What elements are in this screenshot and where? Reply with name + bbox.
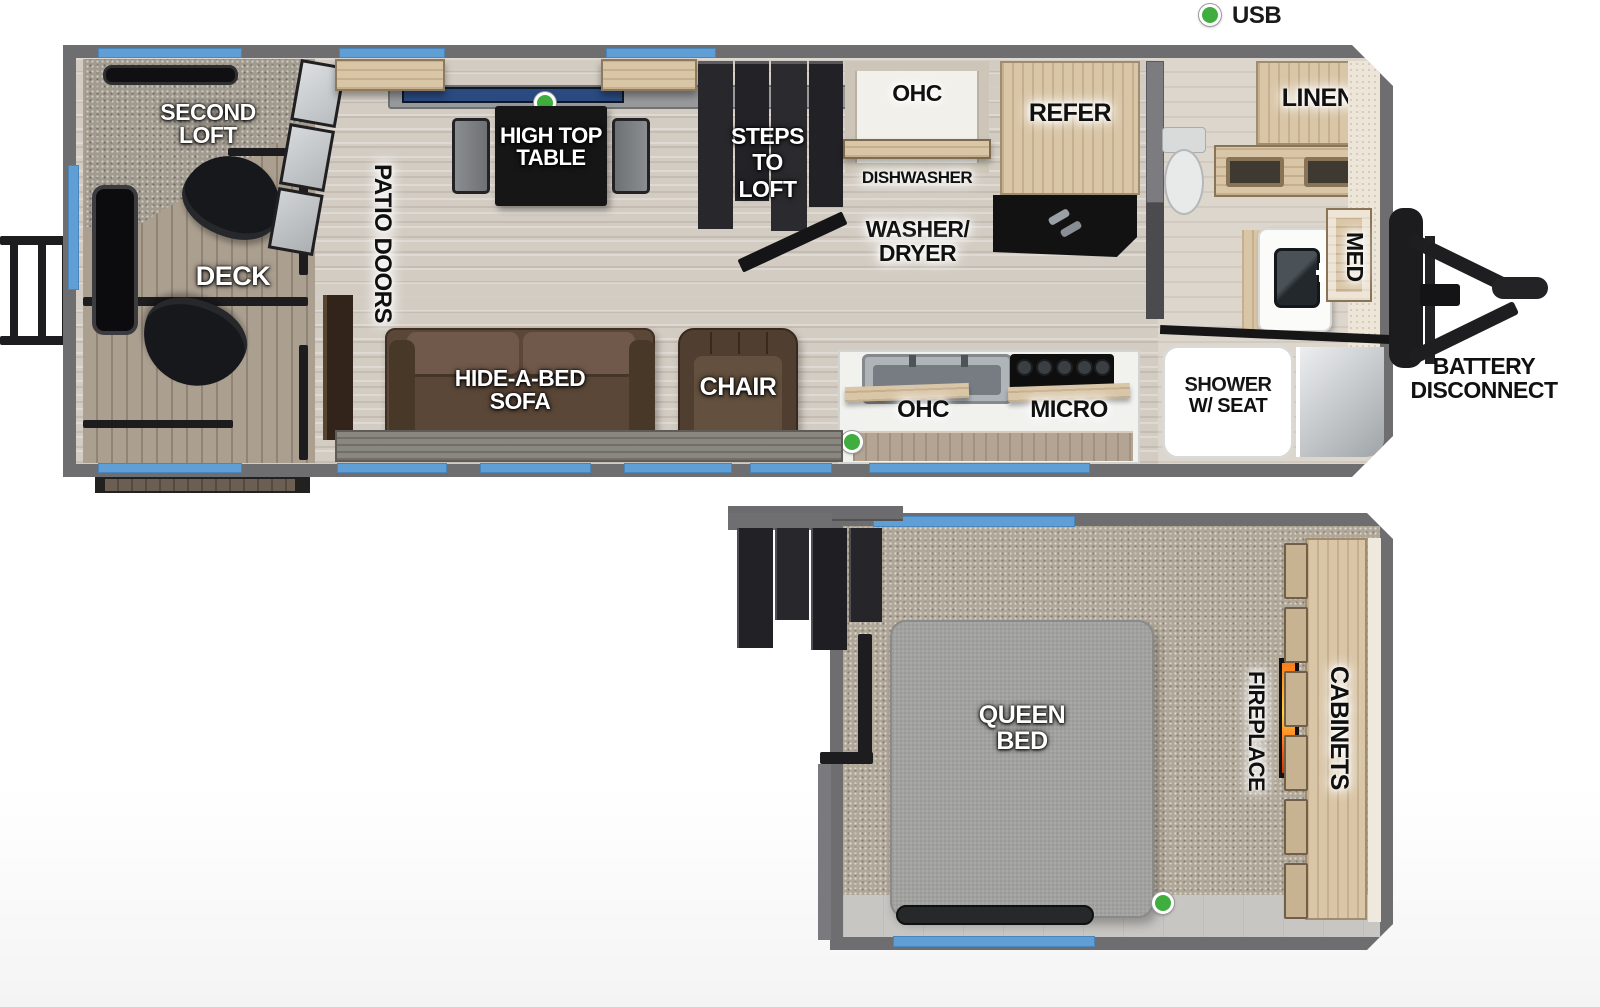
usb-legend-icon — [1199, 4, 1221, 26]
overhead-cabinet — [601, 59, 697, 91]
shower-seat — [1296, 347, 1384, 457]
micro-label: MICRO — [1008, 397, 1130, 422]
high-top-table-label: HIGH TOP TABLE — [493, 125, 609, 170]
cabinet-drawers — [1284, 543, 1308, 920]
counter-dishwasher — [843, 139, 991, 159]
loft-stair-railing — [820, 752, 873, 764]
patio-doors-label: PATIO DOORS — [359, 143, 395, 343]
table-chair — [612, 118, 650, 194]
deck-railing — [83, 420, 233, 428]
floorplan-canvas: USB SECOND LOFT DECK PATIO DOORS — [0, 0, 1600, 1007]
roof-vent — [103, 65, 238, 85]
ohc-top-label: OHC — [845, 81, 989, 105]
rear-ladder-rung — [10, 236, 18, 344]
window-accent — [869, 463, 1090, 473]
med-label: MED — [1331, 217, 1367, 297]
cabinets-label: CABINETS — [1316, 643, 1352, 813]
main-floor-plan: SECOND LOFT DECK PATIO DOORS HIGH TOP TA… — [63, 45, 1393, 477]
bed-footboard — [896, 905, 1094, 925]
ohc-bottom-label: OHC — [863, 397, 983, 422]
overhead-cabinet — [335, 59, 445, 91]
chair-label: CHAIR — [681, 375, 795, 401]
deck-lower-step — [95, 477, 310, 493]
loft-left-wall — [818, 764, 831, 940]
rear-ladder-rung — [38, 236, 46, 344]
washer-dryer-label: WASHER/ DRYER — [835, 217, 1000, 265]
window-accent — [480, 463, 591, 473]
rear-window — [92, 185, 138, 335]
window-accent-left — [68, 165, 79, 290]
bathroom-sink — [1274, 248, 1320, 308]
loft-stair-railing — [858, 634, 872, 758]
window-accent — [873, 516, 1075, 527]
window-accent — [893, 936, 1095, 947]
window-accent — [339, 48, 445, 58]
bathroom-door — [1146, 203, 1164, 319]
usb-legend-label: USB — [1232, 2, 1281, 30]
queen-bed-label: QUEEN BED — [890, 703, 1154, 754]
refer-label: REFER — [1000, 100, 1140, 126]
deck-railing — [299, 345, 308, 460]
usb-indicator-loft — [1152, 892, 1174, 914]
toilet-bowl — [1164, 149, 1204, 215]
window-accent — [750, 463, 832, 473]
sofa-label: HIDE-A-BED SOFA — [415, 367, 625, 414]
fireplace-label: FIREPLACE — [1234, 651, 1268, 811]
usb-indicator-kitchen — [841, 431, 863, 453]
propane-battery-box — [1389, 208, 1423, 368]
loft-stairs — [811, 528, 847, 650]
shower-label: SHOWER W/ SEAT — [1162, 375, 1294, 417]
window-accent — [337, 463, 447, 473]
counter-base — [853, 431, 1133, 461]
refrigerator — [1000, 61, 1140, 195]
second-loft-label: SECOND LOFT — [123, 101, 293, 148]
queen-bed — [890, 620, 1154, 918]
hitch-coupler — [1492, 277, 1548, 299]
loft-stairs — [737, 528, 773, 648]
front-wall-panel — [1368, 538, 1381, 922]
window-accent — [606, 48, 716, 58]
wardrobe — [323, 295, 353, 440]
window-accent — [98, 48, 242, 58]
window-accent — [98, 463, 242, 473]
tongue-jack — [1420, 284, 1460, 306]
window-accent — [624, 463, 732, 473]
kitchen-black-counter — [993, 195, 1137, 257]
table-chair — [452, 118, 490, 194]
entry-step-board — [335, 430, 843, 462]
faucet-icon — [1319, 263, 1324, 282]
dishwasher-label: DISHWASHER — [843, 169, 991, 187]
steps-to-loft-label: STEPS TO LOFT — [690, 123, 845, 202]
loft-floor-plan: QUEEN BED FIREPLACE CABINETS — [830, 513, 1393, 950]
loft-stairs — [849, 528, 882, 622]
loft-stairs — [775, 528, 809, 620]
battery-disconnect-label: BATTERY DISCONNECT — [1398, 354, 1570, 402]
